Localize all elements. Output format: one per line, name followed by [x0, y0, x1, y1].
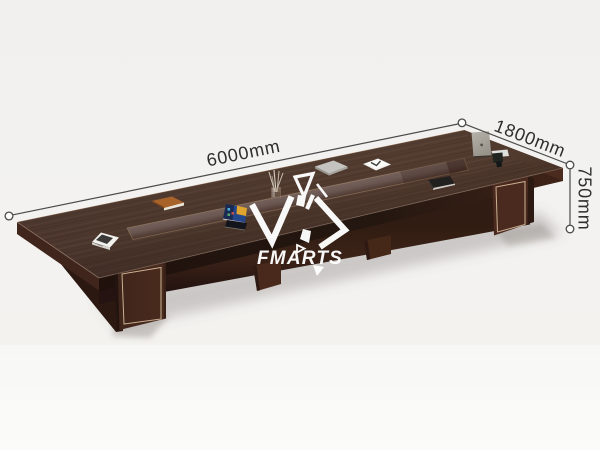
svg-text:FMARTS: FMARTS: [257, 248, 343, 269]
svg-text:750mm: 750mm: [575, 167, 595, 231]
